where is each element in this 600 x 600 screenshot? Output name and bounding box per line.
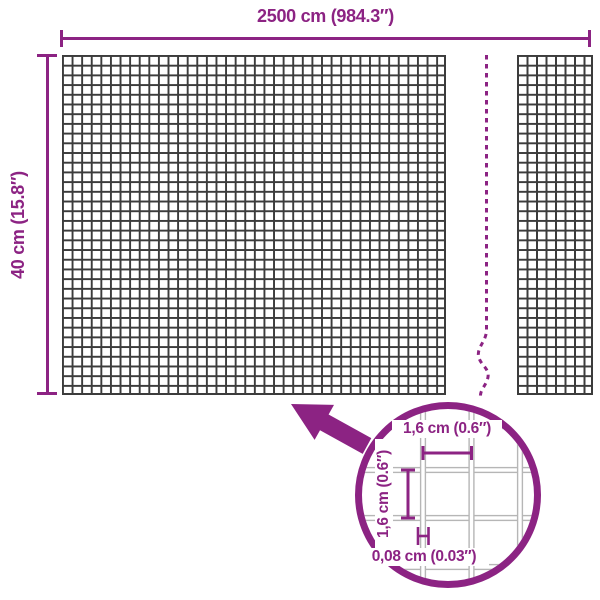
product-dimension-diagram: 2500 cm (984.3″) 40 cm (15.8″) (0, 0, 600, 600)
mesh-panel-right (517, 55, 593, 395)
cell-height-label: 1,6 cm (0.6″) (375, 439, 393, 549)
mesh-panel-main (62, 55, 446, 395)
wire-thickness-label: 0,08 cm (0.03″) (359, 548, 489, 566)
height-dimension-cap-top (37, 54, 57, 57)
width-dimension-label: 2500 cm (984.3″) (61, 6, 590, 27)
zoom-arrow-icon (291, 404, 371, 454)
break-line (478, 55, 488, 398)
height-dimension-line (46, 55, 49, 395)
width-dimension-cap-right (588, 30, 591, 47)
height-dimension-cap-bottom (37, 392, 57, 395)
cell-width-label: 1,6 cm (0.6″) (392, 420, 502, 438)
cell-width-marker (423, 446, 472, 460)
wire-thickness-marker (418, 527, 429, 545)
width-dimension-cap-left (60, 30, 63, 47)
height-dimension-label: 40 cm (15.8″) (8, 55, 30, 395)
cell-height-marker (401, 470, 415, 518)
width-dimension-line (61, 37, 590, 40)
